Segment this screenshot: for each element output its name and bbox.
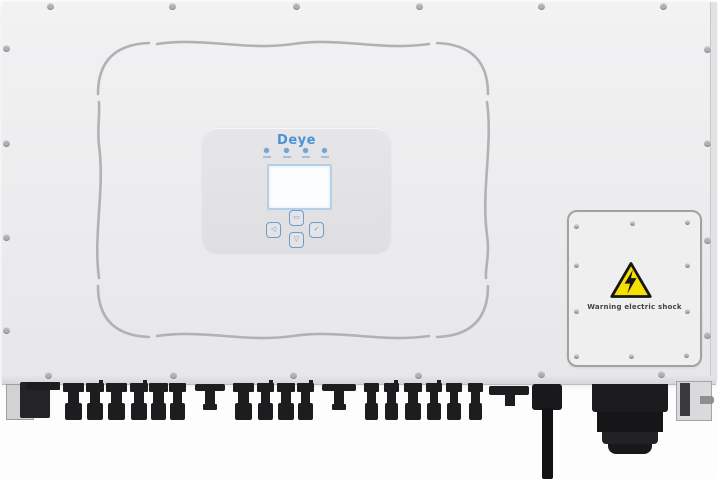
mc4-connector-icon [297,383,314,425]
mc4-connector-icon [233,383,254,425]
mc4-connector-icon [384,383,399,425]
dc-switch-connector-bar [26,382,60,390]
screw-icon [416,3,423,10]
warning-cover-panel: Warning electric shock [567,210,702,367]
mc4-connector-icon [364,383,379,425]
mc4-connector-icon [257,383,274,425]
mounting-bracket-right-slot [680,383,690,416]
mc4-connector-icon [446,383,462,425]
screw-icon [3,45,10,52]
mc4-connector-icon [426,383,442,425]
screw-icon [704,237,711,244]
screw-icon [3,140,10,147]
led-indicator-icon [321,148,329,161]
high-voltage-warning-icon [609,260,653,300]
mc4-connector-icon [86,383,104,425]
mounting-bracket-right-pin [700,396,714,404]
panel-button-right: ✓ [309,222,324,238]
inverter-photo: Deye ▭ ◁ ✓ ▽ Warning electric shock [0,0,718,479]
trunk-connector-icon [195,384,225,412]
screw-icon [685,263,690,268]
right-flange [710,2,717,382]
cable-plug [532,384,562,410]
trunk-connector-icon [322,384,356,412]
ac-cable-gland [592,384,668,412]
lcd-screen [267,164,332,210]
ac-cable-gland [597,412,663,432]
led-indicator-icon [283,148,291,161]
screw-icon [685,220,690,225]
screw-icon [684,353,689,358]
warning-text: Warning electric shock [569,303,700,311]
led-indicator-icon [302,148,310,161]
screw-icon [629,354,634,359]
screw-icon [630,221,635,226]
screw-icon [574,354,579,359]
mc4-connector-icon [169,383,186,425]
screw-icon [169,3,176,10]
mc4-connector-icon [130,383,148,425]
mc4-connector-icon [149,383,168,425]
screw-icon [415,372,422,379]
screw-icon [45,372,52,379]
mc4-connector-icon [404,383,422,425]
hanging-cable [542,408,553,479]
display-panel: Deye ▭ ◁ ✓ ▽ [203,128,390,252]
comm-connector-icon [489,386,529,408]
mc4-connector-icon [277,383,295,425]
mc4-connector-icon [63,383,84,425]
screw-icon [660,3,667,10]
ac-cable-gland [608,444,652,454]
led-indicator-icon [263,148,271,161]
panel-button-bottom: ▽ [289,232,304,248]
screw-icon [704,332,711,339]
mc4-connector-icon [468,383,483,425]
panel-button-top: ▭ [289,210,304,226]
deye-logo: Deye [203,133,390,148]
screw-icon [290,372,297,379]
screw-icon [3,234,10,241]
screw-icon [293,3,300,10]
screw-icon [574,263,579,268]
screw-icon [704,140,711,147]
screw-icon [47,3,54,10]
screw-icon [538,371,545,378]
panel-button-left: ◁ [266,222,281,238]
screw-icon [574,224,579,229]
screw-icon [658,371,665,378]
ac-cable-gland [602,432,658,444]
mc4-connector-icon [106,383,127,425]
screw-icon [3,327,10,334]
screw-icon [704,46,711,53]
screw-icon [538,3,545,10]
screw-icon [170,372,177,379]
